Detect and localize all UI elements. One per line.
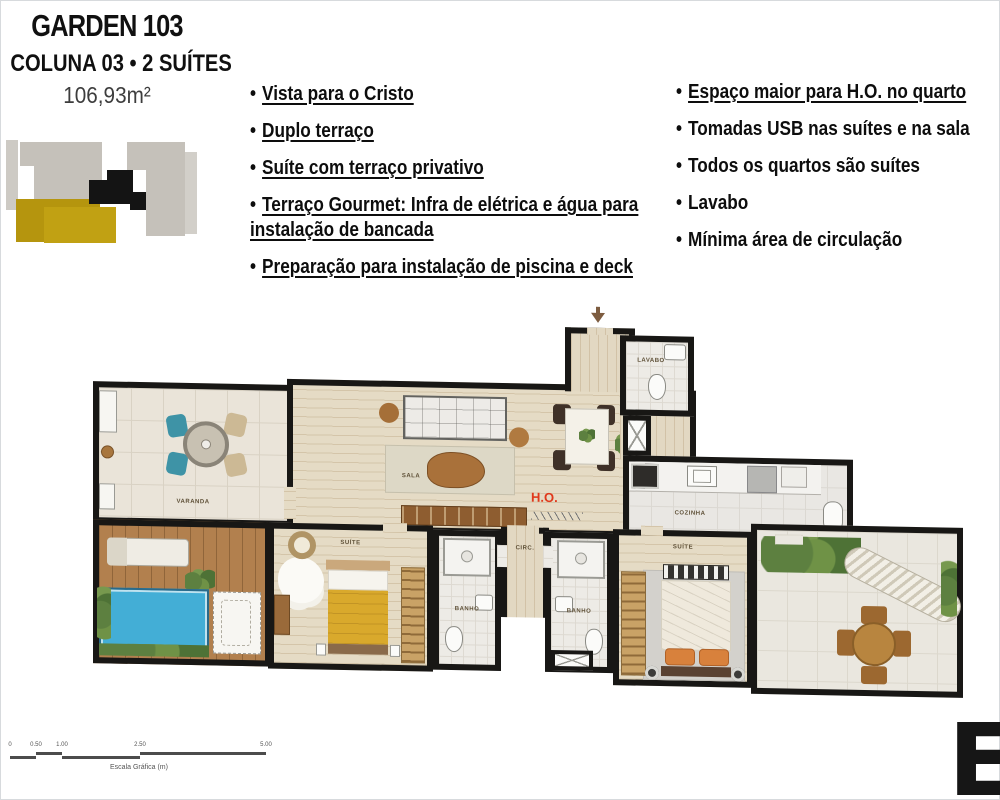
bullet-icon: • (250, 83, 256, 105)
cabinet (781, 466, 807, 487)
shower-head (461, 550, 473, 562)
bullet-icon: • (250, 256, 256, 278)
nightstand (316, 643, 326, 655)
terrace-table (852, 622, 896, 667)
stove (631, 463, 659, 489)
feature-item: •Duplo terraço (250, 119, 639, 144)
pouf (509, 427, 529, 447)
bullet-icon: • (676, 155, 682, 177)
scale-segment (140, 752, 266, 755)
room-suite2: SUÍTE (613, 529, 753, 688)
shaft-small (551, 650, 593, 671)
feature-text: Tomadas USB nas suítes e na sala (688, 118, 970, 140)
bullet-icon: • (250, 120, 256, 142)
terrace-chair (861, 666, 887, 684)
scale-tick-label: 0 (8, 742, 11, 748)
bed-duvet (661, 580, 731, 651)
feature-text: Espaço maior para H.O. no quarto (688, 81, 966, 103)
bed-pillows (328, 570, 388, 591)
door-opening (497, 545, 507, 567)
bullet-icon: • (250, 157, 256, 179)
feature-text: Duplo terraço (262, 120, 374, 142)
feature-item: •Preparação para instalação de piscina e… (250, 255, 639, 280)
room-label-banho2: BANHO (551, 608, 607, 615)
scale-segment (10, 756, 36, 759)
keyplan-block (20, 142, 102, 166)
room-deck (93, 519, 271, 666)
feature-text: Vista para o Cristo (262, 83, 414, 105)
column-subtitle: COLUNA 03 • 2 SUÍTES (10, 50, 203, 78)
room-varanda: VARANDA (93, 381, 293, 527)
door-opening (775, 534, 803, 545)
feature-item: •Lavabo (676, 191, 1000, 216)
scale-segment (36, 752, 62, 755)
wardrobe (621, 571, 646, 675)
scale-tick-label: 0.50 (30, 742, 42, 748)
sink-basin (693, 470, 711, 483)
nightstand-lamp (645, 666, 659, 680)
feature-text: Preparação para instalação de piscina e … (262, 256, 633, 278)
lounge-chair-back (107, 537, 127, 565)
features-list-left: •Vista para o Cristo•Duplo terraço•Suíte… (250, 82, 639, 292)
feature-item: •Todos os quartos são suítes (676, 154, 1000, 179)
keyplan-unit-highlight (89, 180, 133, 204)
room-suite1: SUÍTE (268, 523, 433, 672)
room-banho1: BANHO (433, 530, 501, 671)
room-label-lavabo: LAVABO (620, 357, 682, 364)
feature-item: •Vista para o Cristo (250, 82, 639, 107)
building-keyplan (4, 132, 204, 257)
scale-tick-label: 5.00 (260, 742, 272, 748)
door-opening (641, 526, 663, 536)
scale-tick-label: 1.00 (56, 742, 68, 748)
bullet-icon: • (676, 118, 682, 140)
nightstand-lamp (731, 667, 745, 681)
bullet-icon: • (676, 192, 682, 214)
feature-item: •Suíte com terraço privativo (250, 156, 639, 181)
page-title: GARDEN 103 (13, 8, 202, 44)
shower-head (575, 552, 587, 564)
feature-item: •Terraço Gourmet: Infra de elétrica e ág… (250, 193, 639, 243)
keyplan-block (44, 207, 116, 243)
pillow (699, 649, 729, 667)
door-opening (383, 523, 407, 533)
bed-headboard (661, 666, 731, 677)
feature-item: •Mínima área de circulação (676, 228, 1000, 253)
sideboard (401, 505, 527, 527)
keyplan-unit-highlight (130, 192, 146, 210)
area-label: 106,93m² (4, 82, 211, 109)
pool-plants (99, 643, 209, 657)
floor-plan: VARANDA SALA (85, 295, 975, 722)
feature-text: Todos os quartos são suítes (688, 155, 920, 177)
sofa (403, 395, 507, 441)
home-office-hatch (531, 512, 583, 521)
entry-door-opening (587, 328, 613, 335)
toilet (445, 626, 463, 652)
bed-duvet (328, 590, 388, 645)
side-lamp (379, 403, 399, 423)
feature-item: •Espaço maior para H.O. no quarto (676, 80, 1000, 105)
bbq-counter (99, 390, 117, 432)
header: GARDEN 103 COLUNA 03 • 2 SUÍTES 106,93m² (0, 8, 222, 109)
feature-text: Mínima área de circulação (688, 229, 902, 251)
room-label-sala: SALA (371, 472, 451, 480)
feature-item: •Tomadas USB nas suítes e na sala (676, 117, 1000, 142)
brand-logo: E (948, 702, 1000, 800)
room-label-suite2: SUÍTE (619, 543, 747, 551)
features-list-right: •Espaço maior para H.O. no quarto•Tomada… (676, 80, 1000, 265)
plants-right (941, 557, 957, 631)
coffee-table (427, 452, 485, 489)
fridge (747, 466, 777, 494)
shaft (623, 415, 651, 456)
keyplan-block (146, 168, 185, 236)
door-opening (284, 487, 296, 519)
bed-foot (328, 644, 388, 655)
keyplan-block (127, 142, 185, 170)
side-table (101, 445, 114, 458)
desk (274, 595, 290, 635)
scale-tick-label: 2.50 (134, 742, 146, 748)
room-label-circ: CIRC. (507, 545, 543, 552)
door-opening (507, 525, 539, 536)
room-label-banho1: BANHO (439, 606, 495, 613)
door-opening (543, 546, 553, 568)
table-plant (579, 428, 595, 444)
future-deck-inner (221, 600, 251, 647)
bullet-icon: • (250, 194, 256, 216)
bullet-icon: • (676, 229, 682, 251)
room-terraco-gourmet (751, 524, 963, 698)
scale-caption: Escala Gráfica (m) (8, 764, 270, 771)
room-lavabo: LAVABO (620, 335, 694, 416)
feature-text: Suíte com terraço privativo (262, 157, 484, 179)
nightstand (390, 645, 400, 657)
feature-text: Lavabo (688, 192, 748, 214)
toilet (648, 374, 666, 400)
home-office-label: H.O. (531, 490, 558, 506)
bullet-icon: • (676, 81, 682, 103)
room-label-varanda: VARANDA (99, 497, 287, 507)
entrance-arrow-icon (85, 295, 975, 312)
chair (223, 452, 248, 478)
round-table-center (201, 439, 211, 449)
wardrobe (401, 567, 425, 663)
bed-bench (663, 564, 729, 580)
pillow (665, 648, 695, 666)
floorplan-sheet: GARDEN 103 COLUNA 03 • 2 SUÍTES 106,93m²… (0, 0, 1000, 800)
feature-text: Terraço Gourmet: Infra de elétrica e águ… (250, 194, 638, 241)
keyplan-block (185, 152, 197, 234)
scale-segment (62, 756, 140, 759)
graphic-scale: Escala Gráfica (m) 00.501.002.505.00 (8, 742, 270, 784)
room-circ: CIRC. (501, 527, 549, 618)
